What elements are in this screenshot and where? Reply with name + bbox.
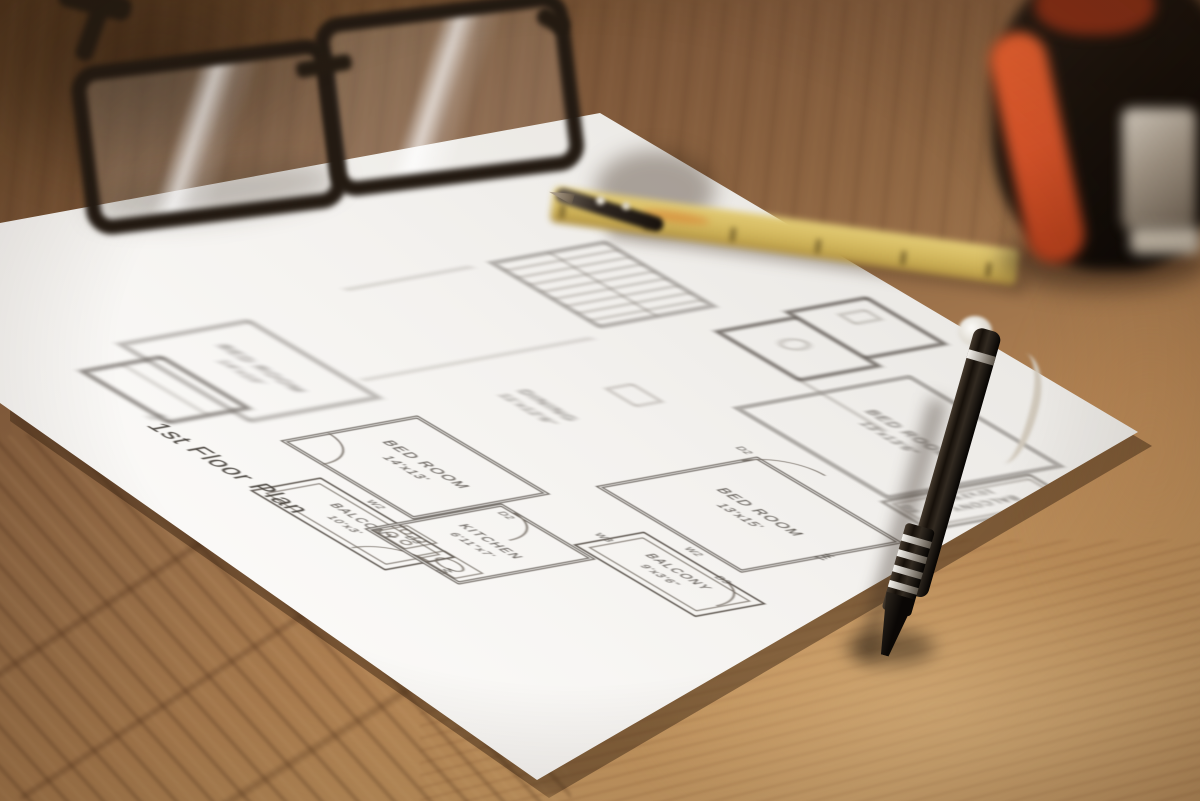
photo-scene: BED ROOM 14'x10' W3 xyxy=(0,0,1200,801)
vignette xyxy=(0,0,1200,801)
